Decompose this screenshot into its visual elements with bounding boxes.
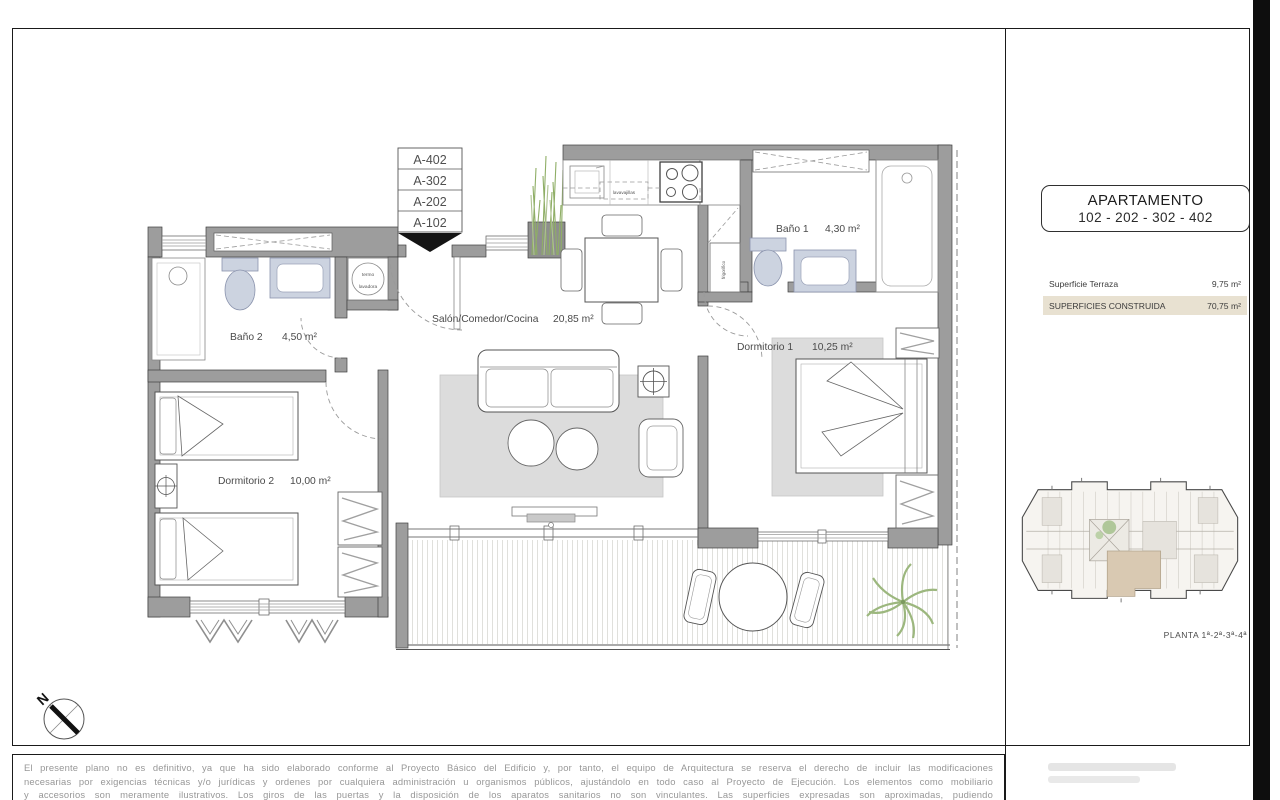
bath2-fixtures <box>152 258 330 360</box>
bed2-furniture <box>155 392 382 597</box>
coffee-table <box>508 420 554 466</box>
fridge-label: frigorífico <box>721 260 726 279</box>
room-label-bed1: Dormitorio 1 <box>737 342 793 353</box>
terrace-decking <box>408 540 948 644</box>
armchair <box>639 419 683 477</box>
room-label-bed2: Dormitorio 2 <box>218 476 274 487</box>
surface-label: SUPERFICIES CONSTRUIDA <box>1049 301 1166 311</box>
single-bed <box>155 392 298 460</box>
double-bed <box>796 359 927 473</box>
apartment-title-box: APARTAMENTO 102 - 202 - 302 - 402 <box>1041 185 1250 232</box>
utility-closet: termo lavadora <box>348 258 388 300</box>
room-label-bath2: Baño 2 <box>230 332 263 343</box>
shower-drain <box>169 267 187 285</box>
terrace-table <box>719 563 787 631</box>
apartment-title: APARTAMENTO <box>1042 192 1249 209</box>
surface-row-construida: SUPERFICIES CONSTRUIDA 70,75 m² <box>1043 296 1247 315</box>
room-area-bath2: 4,50 m² <box>282 332 317 343</box>
toilet <box>225 270 255 310</box>
living-furniture <box>440 215 683 528</box>
toilet <box>754 250 782 286</box>
surface-row-terraza: Superficie Terraza 9,75 m² <box>1043 275 1247 293</box>
awning-symbols <box>196 620 338 642</box>
disclaimer-box: El presente plano no es definitivo, ya q… <box>12 754 1005 800</box>
room-label-bath1: Baño 1 <box>776 224 809 235</box>
unit-label: A-102 <box>413 216 446 230</box>
unit-label: A-302 <box>413 174 446 188</box>
dining-set <box>561 215 682 324</box>
sink <box>801 257 849 285</box>
wardrobe <box>338 492 382 597</box>
room-area-bed1: 10,25 m² <box>812 342 853 353</box>
page-edge-bar <box>1253 0 1270 800</box>
keyplan-caption: PLANTA 1ª-2ª-3ª-4ª <box>1100 630 1247 640</box>
disclaimer-line: necesarias por exigencias técnicas y/o j… <box>24 775 993 789</box>
dining-table <box>585 238 658 302</box>
watermark-logo <box>1048 763 1176 783</box>
dishwasher-label: lavavajillas <box>613 190 636 195</box>
surface-value: 70,75 m² <box>1207 301 1241 311</box>
north-compass-icon: N <box>34 690 84 739</box>
apartment-numbers: 102 - 202 - 302 - 402 <box>1042 210 1249 225</box>
room-label-living: Salón/Comedor/Cocina <box>432 314 539 325</box>
fridge: frigorífico <box>710 243 740 292</box>
stove <box>660 162 702 202</box>
column-marker <box>638 366 669 397</box>
coffee-table <box>556 428 598 470</box>
single-bed <box>155 513 298 585</box>
tv-unit <box>512 507 597 528</box>
floorplan-drawing: A-402 A-302 A-202 A-102 <box>12 28 1005 746</box>
unit-label: A-402 <box>413 153 446 167</box>
panel-divider <box>1005 28 1006 800</box>
room-area-bed2: 10,00 m² <box>290 476 331 487</box>
water-heater-label: termo <box>362 272 375 278</box>
unit-label-stack: A-402 A-302 A-202 A-102 <box>398 148 462 252</box>
sofa <box>478 350 619 412</box>
surface-value: 9,75 m² <box>1212 279 1241 289</box>
washer-label: lavadora <box>359 284 378 290</box>
surface-table: Superficie Terraza 9,75 m² SUPERFICIES C… <box>1043 275 1247 315</box>
nightstand <box>155 464 177 508</box>
room-area-living: 20,85 m² <box>553 314 594 325</box>
bathtub <box>876 160 938 292</box>
bed1-furniture <box>772 328 939 528</box>
disclaimer-line: El presente plano no es definitivo, ya q… <box>24 761 993 775</box>
surface-label: Superficie Terraza <box>1049 279 1118 289</box>
unit-label: A-202 <box>413 195 446 209</box>
sink <box>277 264 323 292</box>
room-area-bath1: 4,30 m² <box>825 224 860 235</box>
floorplan-page: A-402 A-302 A-202 A-102 <box>0 0 1280 800</box>
disclaimer-line: y accesorios son meramente ilustrativos.… <box>24 788 993 800</box>
building-keyplan <box>1012 468 1248 628</box>
